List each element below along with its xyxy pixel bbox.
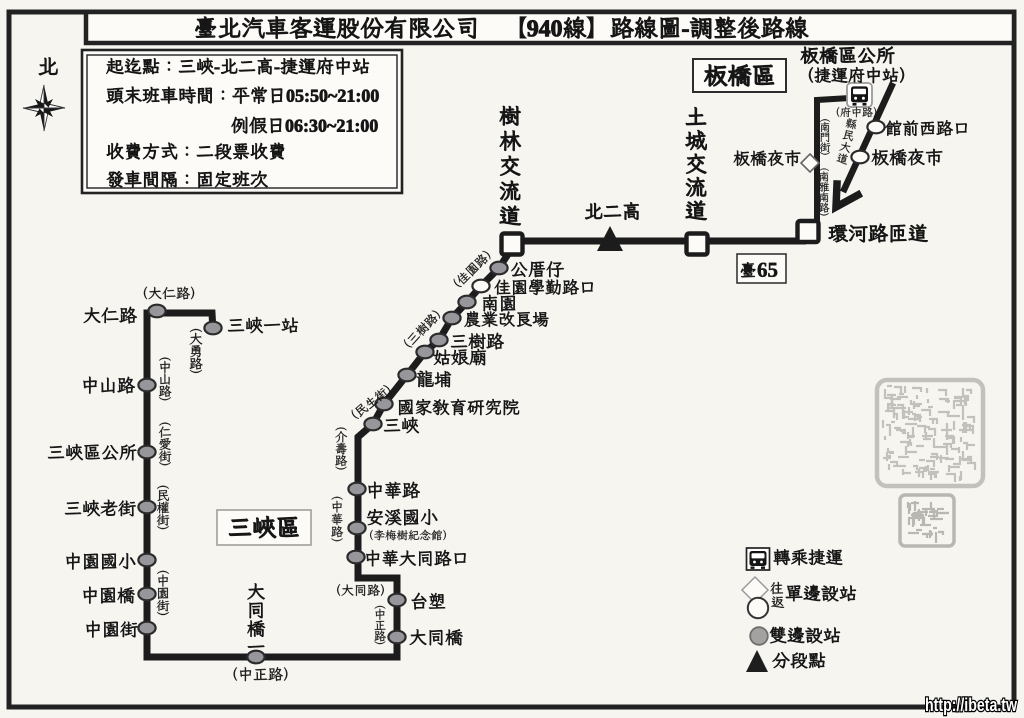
svg-text:http://ibeta.tw: http://ibeta.tw bbox=[925, 694, 1017, 715]
